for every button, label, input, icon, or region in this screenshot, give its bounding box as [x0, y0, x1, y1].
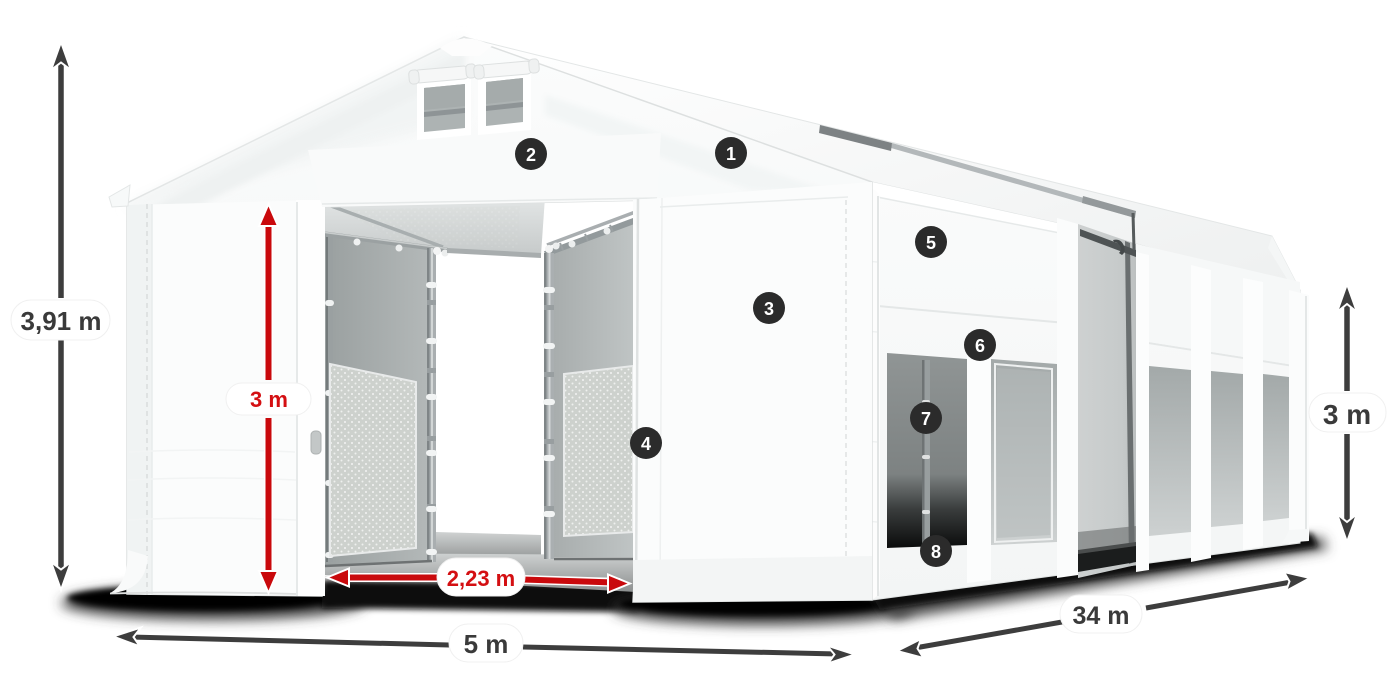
svg-text:2: 2: [526, 145, 536, 165]
svg-text:34 m: 34 m: [1073, 602, 1130, 630]
svg-text:4: 4: [641, 434, 651, 454]
svg-text:6: 6: [975, 336, 985, 356]
svg-text:3,91 m: 3,91 m: [21, 306, 102, 336]
svg-text:2,23 m: 2,23 m: [447, 566, 516, 591]
svg-text:5 m: 5 m: [464, 629, 509, 659]
svg-text:8: 8: [931, 542, 941, 562]
svg-text:7: 7: [921, 409, 931, 429]
svg-text:3 m: 3 m: [1323, 399, 1371, 430]
svg-text:3 m: 3 m: [250, 387, 288, 412]
svg-text:5: 5: [926, 233, 936, 253]
svg-text:3: 3: [764, 299, 774, 319]
svg-text:1: 1: [726, 144, 736, 164]
